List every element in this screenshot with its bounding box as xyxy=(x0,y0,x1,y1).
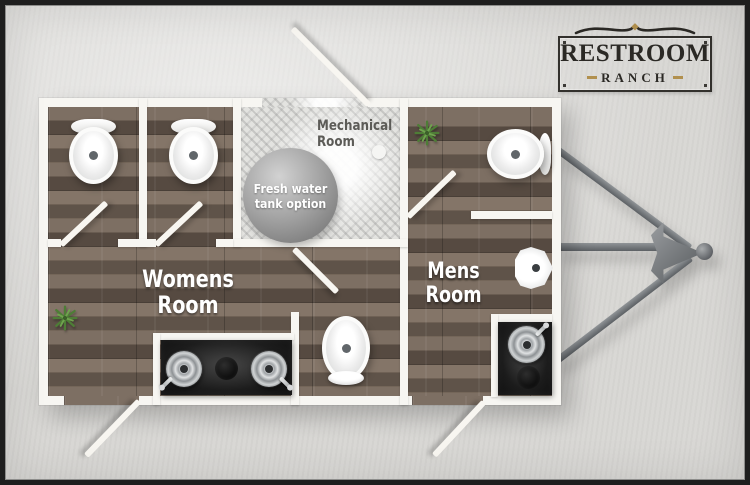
womens-room-label: Womens Room xyxy=(123,266,253,318)
womens-stall2-toilet xyxy=(169,119,219,185)
logo-plate: Restroom Ranch xyxy=(558,36,712,92)
gold-tick-icon xyxy=(587,76,597,79)
plant-icon xyxy=(51,304,79,332)
sink-basin-icon xyxy=(166,351,202,387)
counter-drain-icon xyxy=(215,357,238,380)
stall-front-wall xyxy=(216,239,233,247)
mens-vanity-partition xyxy=(491,314,552,322)
mens-stall-partition xyxy=(471,211,552,219)
mens-toilet xyxy=(487,129,552,180)
womens-vanity-partition xyxy=(153,333,294,340)
restroom-ranch-logo: Restroom Ranch xyxy=(556,22,714,90)
stall-front-wall xyxy=(118,239,156,247)
faucet-icon xyxy=(160,376,173,389)
mens-room-label: Mens Room xyxy=(401,260,506,308)
logo-text-top: Restroom xyxy=(560,41,710,67)
faucet-icon xyxy=(279,376,292,389)
womens-vanity-counter xyxy=(161,340,292,395)
stall-partition-wall xyxy=(139,98,147,247)
womens-stall1-toilet xyxy=(69,119,119,185)
accessible-stall-wall xyxy=(291,312,299,405)
top-doorway-opening xyxy=(262,98,368,107)
mens-vanity-partition xyxy=(491,314,498,397)
womens-accessible-toilet xyxy=(322,316,370,388)
plant-icon xyxy=(413,119,441,147)
hitch-ball-icon xyxy=(696,243,713,260)
fresh-water-tank-label: Fresh water tank option xyxy=(249,181,333,211)
floor-plan-page: Fresh water tank option xyxy=(0,0,750,485)
restroom-trailer-floor-plan: Fresh water tank option xyxy=(39,98,561,405)
tongue-lower-bar-icon xyxy=(554,255,693,364)
toilet-bowl xyxy=(69,127,118,184)
mechanical-room-bottom-wall xyxy=(233,239,408,247)
womens-vanity-partition xyxy=(153,333,160,405)
fresh-water-tank: Fresh water tank option xyxy=(243,148,338,243)
mens-vanity-counter xyxy=(498,322,552,395)
counter-drain-icon xyxy=(517,366,540,389)
stall-partition-wall xyxy=(233,98,241,247)
mechanical-room-label: Mechanical Room xyxy=(317,118,417,150)
toilet-bowl xyxy=(487,129,544,179)
womens-doorway-opening xyxy=(64,396,139,405)
toilet-bowl xyxy=(169,127,218,184)
mens-doorway-opening xyxy=(412,396,483,405)
tongue-upper-bar-icon xyxy=(554,146,692,251)
logo-text-bottom-row: Ranch xyxy=(560,67,710,86)
gold-tick-icon xyxy=(673,76,683,79)
toilet-lid xyxy=(328,371,364,385)
